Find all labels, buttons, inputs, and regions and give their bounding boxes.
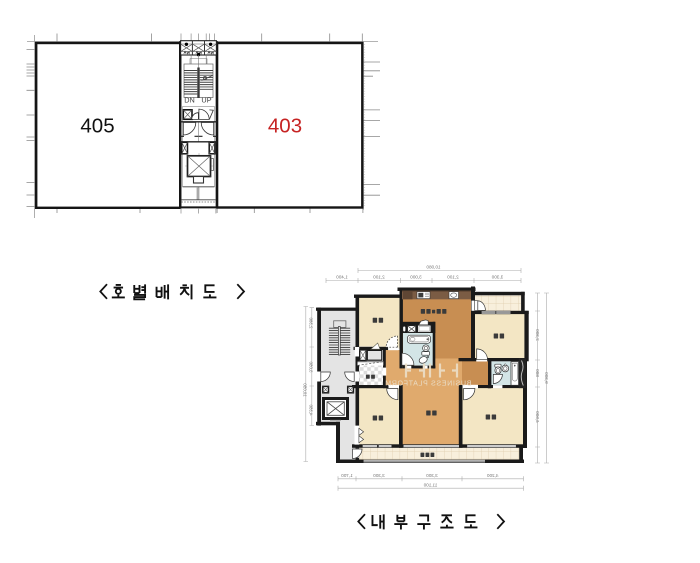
svg-text:2,300: 2,300 xyxy=(535,329,540,341)
svg-text:3,050: 3,050 xyxy=(309,361,314,373)
svg-text:DN: DN xyxy=(184,95,195,104)
svg-text:4,200: 4,200 xyxy=(487,473,499,478)
svg-text:4,500: 4,500 xyxy=(535,411,540,423)
svg-text:1,700: 1,700 xyxy=(341,473,353,478)
svg-text:2,100: 2,100 xyxy=(373,275,385,280)
svg-text:10,050: 10,050 xyxy=(303,383,308,397)
svg-text:2,380: 2,380 xyxy=(309,317,314,329)
svg-text:9,300: 9,300 xyxy=(544,372,549,384)
svg-text:405: 405 xyxy=(80,115,114,138)
svg-text:BUSINESS PLATFORM: BUSINESS PLATFORM xyxy=(385,381,472,388)
svg-text:1,400: 1,400 xyxy=(336,275,348,280)
svg-text:3,300: 3,300 xyxy=(426,473,438,478)
svg-text:3,300: 3,300 xyxy=(373,473,385,478)
svg-text:UP: UP xyxy=(201,95,211,104)
svg-text:800: 800 xyxy=(535,369,540,377)
svg-text:3,300: 3,300 xyxy=(491,275,503,280)
svg-text:2,100: 2,100 xyxy=(447,275,459,280)
svg-text:10,080: 10,080 xyxy=(426,265,440,270)
svg-text:11,100: 11,100 xyxy=(423,482,437,487)
svg-text:403: 403 xyxy=(268,115,302,138)
svg-text:3,000: 3,000 xyxy=(410,275,422,280)
svg-text:4,350: 4,350 xyxy=(309,404,314,416)
